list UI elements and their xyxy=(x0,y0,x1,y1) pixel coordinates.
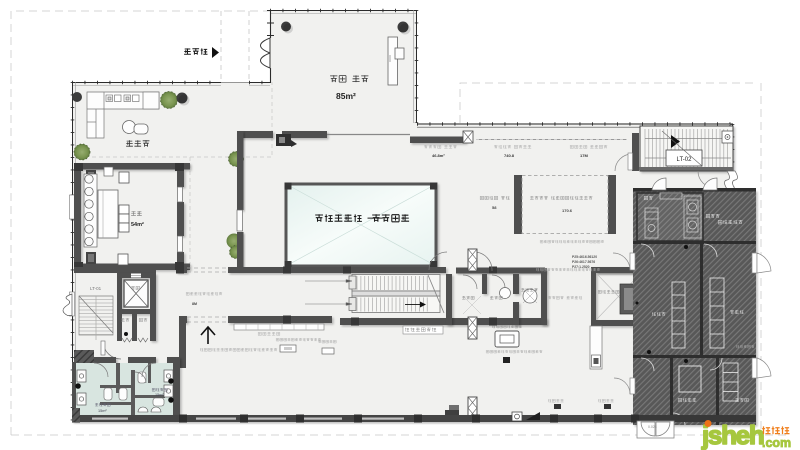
svg-text:46.8m²: 46.8m² xyxy=(432,153,445,158)
svg-text:P25:4616.56120: P25:4616.56120 xyxy=(572,255,597,259)
svg-text:.com: .com xyxy=(762,436,791,450)
svg-text:17M: 17M xyxy=(580,153,588,158)
svg-text:P26:4617.5676: P26:4617.5676 xyxy=(572,260,595,264)
svg-text:85m²: 85m² xyxy=(336,91,356,101)
svg-text:740.8: 740.8 xyxy=(504,153,515,158)
svg-text:54m²: 54m² xyxy=(131,221,144,228)
svg-text:0.024: 0.024 xyxy=(648,425,657,429)
svg-text:LT-01: LT-01 xyxy=(90,286,102,291)
svg-text:8M: 8M xyxy=(192,302,197,306)
svg-text:15m²: 15m² xyxy=(155,393,164,397)
svg-text:LT-02: LT-02 xyxy=(677,157,693,163)
svg-text:58: 58 xyxy=(492,205,497,210)
svg-text:15m²: 15m² xyxy=(98,409,107,413)
svg-text:170.6: 170.6 xyxy=(562,208,573,213)
